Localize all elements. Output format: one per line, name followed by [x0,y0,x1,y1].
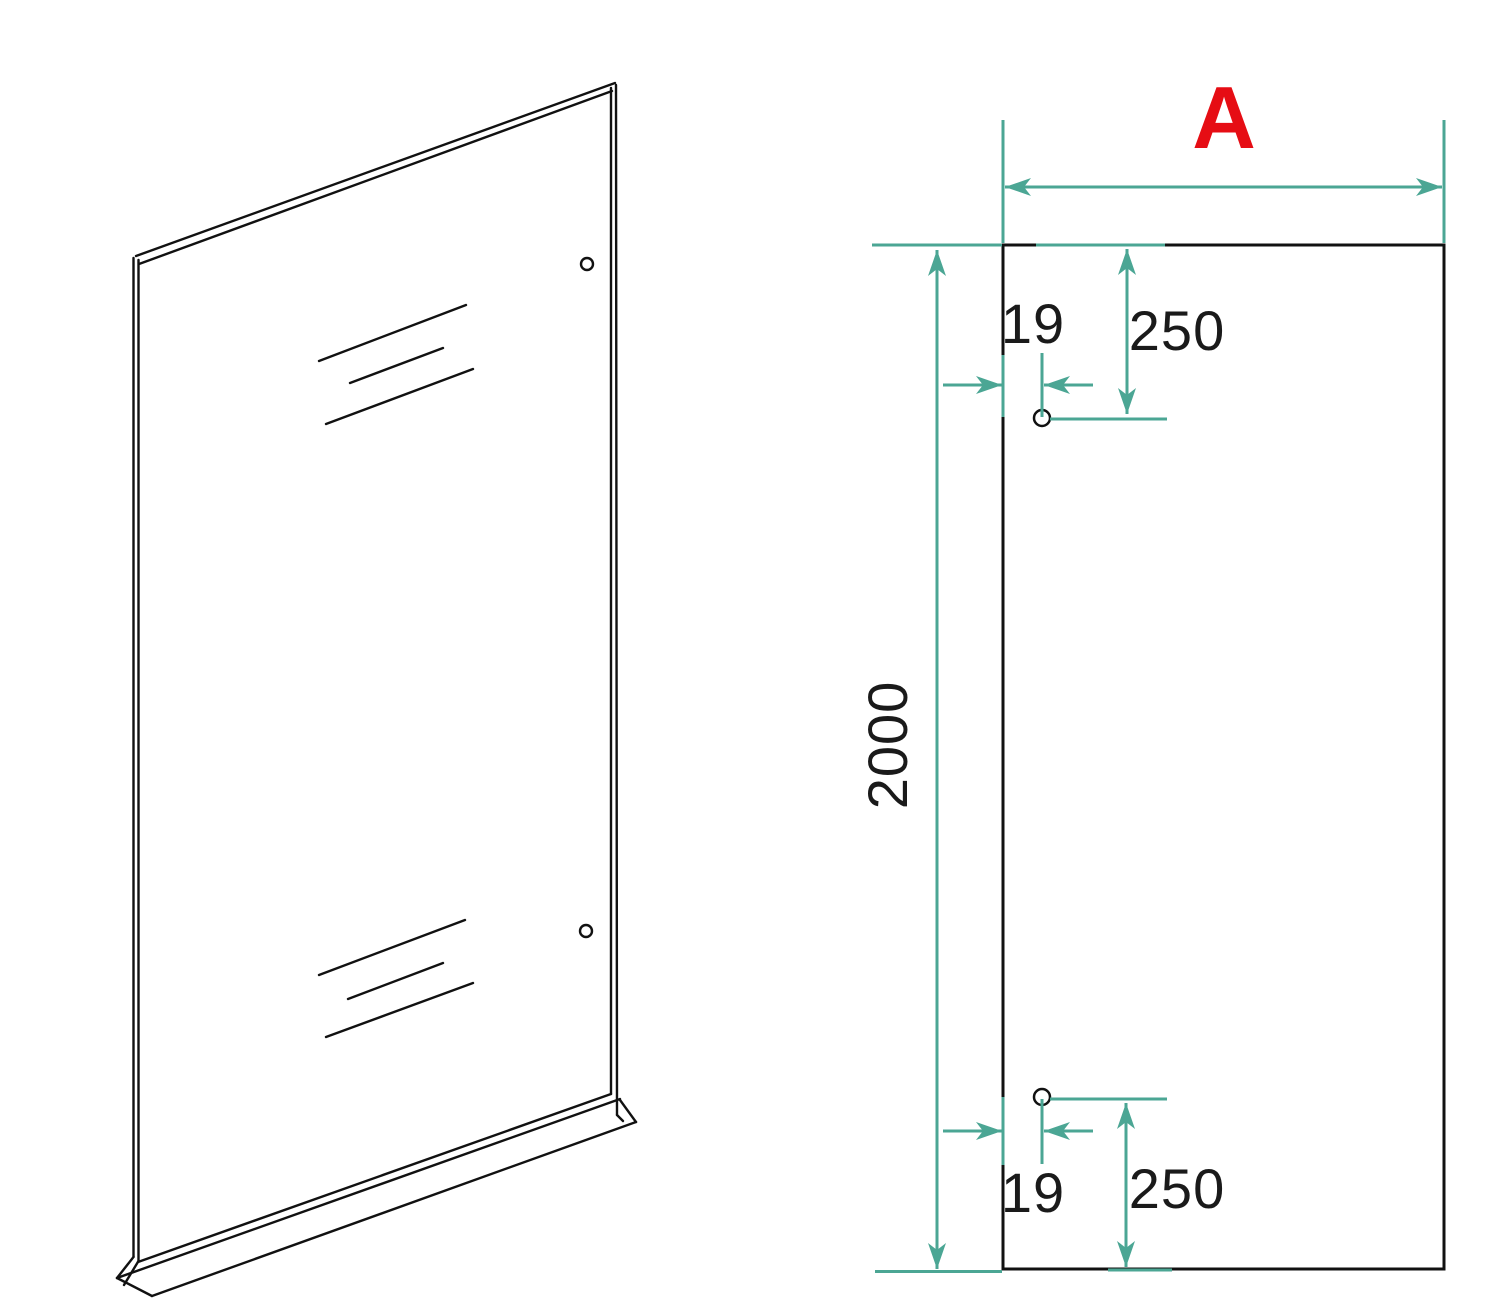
panel-right-edge-outer [616,85,617,1115]
panel-top-edge-outer [136,83,615,256]
base-bottom-edge [152,1122,636,1296]
glass-panel-perspective-view [117,83,636,1296]
technical-drawing-canvas: A 2000 19 250 19 250 [0,0,1509,1316]
reflection-lines-lower [319,920,473,1037]
width-dimension-label: A [1192,74,1256,162]
panel-top-edge-inner [139,91,612,264]
perspective-hole-bottom [580,925,592,937]
top-hole-offset-label: 250 [1129,303,1225,359]
bottom-hole-inset-label: 19 [1001,1165,1065,1221]
top-hole-inset-label: 19 [1001,296,1065,352]
height-dimension-label: 2000 [860,681,916,810]
glass-panel-front-view [1003,245,1444,1269]
drawing-svg [0,0,1509,1316]
reflection-lines-upper [319,305,473,424]
base-top-edge [117,1099,620,1278]
base-right-step [617,1115,623,1121]
perspective-hole-top [581,258,593,270]
base-left-cap [117,1278,152,1296]
bottom-hole-offset-label: 250 [1129,1161,1225,1217]
panel-bottom-edge [138,1094,611,1262]
panel-outline [1003,245,1444,1269]
base-right-cap [620,1100,636,1122]
